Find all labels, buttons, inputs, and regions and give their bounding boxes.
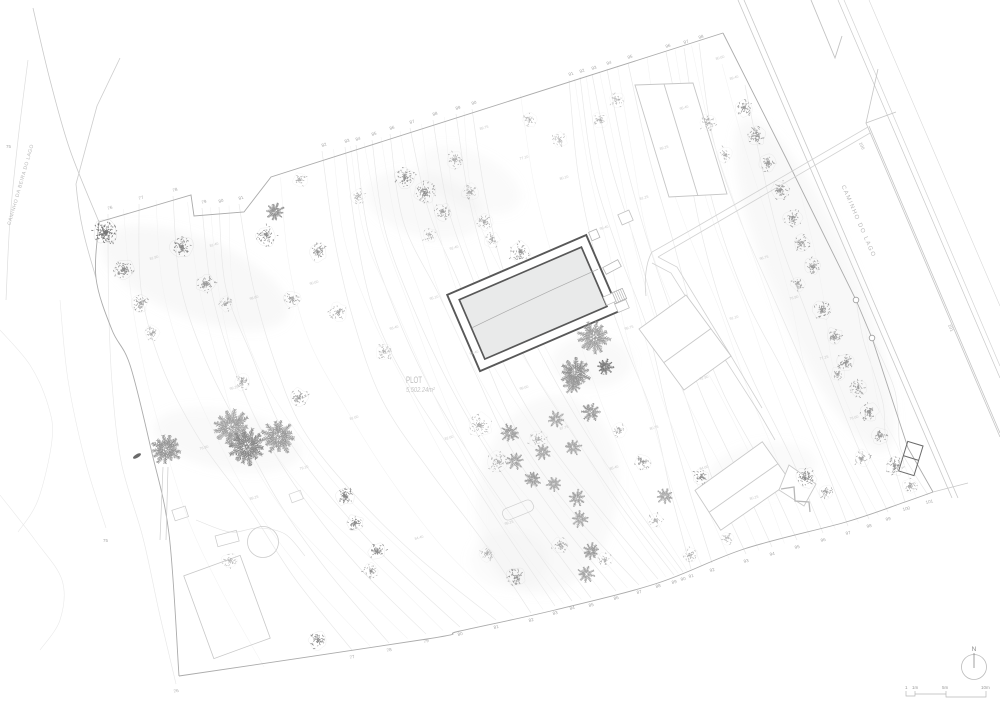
svg-text:80: 80 xyxy=(218,198,225,204)
svg-text:77.10: 77.10 xyxy=(519,155,529,161)
svg-text:84.60: 84.60 xyxy=(699,465,709,471)
svg-text:99.40: 99.40 xyxy=(599,225,609,231)
svg-text:101: 101 xyxy=(925,498,934,505)
svg-text:98: 98 xyxy=(866,523,872,529)
svg-text:85: 85 xyxy=(588,602,594,608)
svg-text:99: 99 xyxy=(885,516,891,522)
svg-text:91: 91 xyxy=(688,573,694,579)
svg-text:86: 86 xyxy=(613,595,619,601)
svg-text:91.10: 91.10 xyxy=(729,315,739,321)
svg-text:95: 95 xyxy=(627,54,634,60)
svg-text:76: 76 xyxy=(173,688,179,694)
svg-text:81.60: 81.60 xyxy=(349,415,359,421)
svg-text:94: 94 xyxy=(606,60,613,66)
svg-text:83: 83 xyxy=(344,138,351,144)
svg-text:80: 80 xyxy=(457,631,463,637)
svg-text:1: 1 xyxy=(905,685,908,690)
svg-text:81: 81 xyxy=(493,624,499,630)
svg-text:89.25: 89.25 xyxy=(249,495,259,501)
svg-text:CAMINHO DO LAGO: CAMINHO DO LAGO xyxy=(840,184,877,258)
svg-text:78: 78 xyxy=(386,647,392,653)
svg-text:80.60: 80.60 xyxy=(715,55,725,61)
svg-text:PLOT: PLOT xyxy=(406,375,422,385)
svg-text:95.10: 95.10 xyxy=(429,295,439,301)
svg-text:90.60: 90.60 xyxy=(309,280,319,286)
svg-text:81.25: 81.25 xyxy=(639,195,649,201)
svg-text:82.60: 82.60 xyxy=(444,435,454,441)
svg-text:95: 95 xyxy=(794,544,800,550)
svg-text:96: 96 xyxy=(665,43,672,49)
svg-text:87: 87 xyxy=(409,119,416,125)
svg-text:99.25: 99.25 xyxy=(229,385,239,391)
svg-text:79.10: 79.10 xyxy=(299,465,309,471)
svg-text:94: 94 xyxy=(769,551,775,557)
svg-text:99.75: 99.75 xyxy=(624,325,634,331)
svg-text:80.10: 80.10 xyxy=(559,175,569,181)
svg-text:100: 100 xyxy=(902,505,911,512)
svg-text:82: 82 xyxy=(528,617,534,623)
svg-text:93: 93 xyxy=(743,558,749,564)
svg-text:83: 83 xyxy=(552,610,558,616)
svg-text:91: 91 xyxy=(568,71,575,77)
svg-text:90: 90 xyxy=(680,576,686,582)
svg-text:92.40: 92.40 xyxy=(449,245,459,251)
svg-text:77: 77 xyxy=(349,654,355,660)
svg-text:90: 90 xyxy=(471,100,478,106)
svg-text:81: 81 xyxy=(238,195,245,201)
svg-text:10m: 10m xyxy=(981,685,990,690)
svg-text:89: 89 xyxy=(671,579,677,585)
svg-text:92: 92 xyxy=(579,68,586,74)
svg-text:80.75: 80.75 xyxy=(649,425,659,431)
svg-text:99.60: 99.60 xyxy=(519,385,529,391)
svg-text:86: 86 xyxy=(389,125,396,131)
svg-text:84: 84 xyxy=(355,136,362,142)
svg-text:5m: 5m xyxy=(942,685,949,690)
svg-text:87: 87 xyxy=(636,589,642,595)
svg-text:78: 78 xyxy=(172,187,179,193)
svg-text:79: 79 xyxy=(201,199,208,205)
svg-text:1m: 1m xyxy=(912,685,919,690)
svg-text:75: 75 xyxy=(103,538,109,543)
svg-text:77: 77 xyxy=(138,195,145,201)
svg-text:76: 76 xyxy=(107,205,114,211)
svg-text:88: 88 xyxy=(655,583,661,589)
svg-text:84.40: 84.40 xyxy=(414,535,424,541)
svg-text:88: 88 xyxy=(432,111,439,117)
svg-text:97: 97 xyxy=(845,530,851,536)
svg-text:89: 89 xyxy=(455,105,462,111)
svg-text:92: 92 xyxy=(709,567,715,573)
svg-text:89.40: 89.40 xyxy=(729,75,739,81)
svg-text:N: N xyxy=(972,646,977,653)
svg-text:93.40: 93.40 xyxy=(389,325,399,331)
svg-text:CAMINHO DA BEIRA DO LAGO: CAMINHO DA BEIRA DO LAGO xyxy=(7,144,36,226)
svg-text:96: 96 xyxy=(820,537,826,543)
svg-text:100: 100 xyxy=(858,141,866,150)
svg-text:84: 84 xyxy=(569,605,575,611)
svg-text:82: 82 xyxy=(321,142,328,148)
svg-text:5,502.24m2: 5,502.24m2 xyxy=(406,386,435,394)
svg-text:89.75: 89.75 xyxy=(479,125,489,131)
svg-text:75: 75 xyxy=(6,144,12,149)
svg-text:93: 93 xyxy=(591,65,598,71)
svg-text:85: 85 xyxy=(371,131,378,137)
